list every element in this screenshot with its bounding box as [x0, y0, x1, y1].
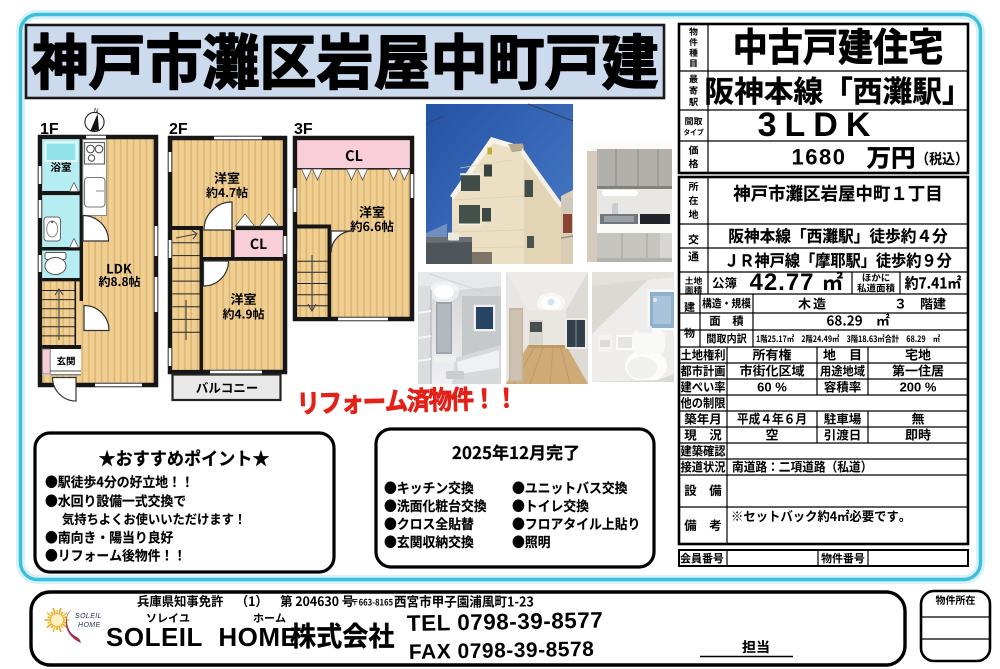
svg-text:3LDK: 3LDK [758, 106, 879, 144]
svg-text:TEL 0798-39-8577: TEL 0798-39-8577 [407, 608, 604, 636]
svg-text:1680: 1680 [792, 145, 847, 170]
svg-text:42.77: 42.77 [749, 269, 814, 296]
svg-text:200 %: 200 % [900, 380, 937, 395]
svg-text:FAX 0798-39-8578: FAX 0798-39-8578 [409, 638, 595, 664]
svg-text:3F: 3F [294, 121, 313, 138]
svg-text:N: N [94, 108, 99, 115]
svg-text:SOLEIL HOME: SOLEIL HOME [106, 622, 298, 652]
svg-text:HOME: HOME [78, 622, 101, 629]
svg-text:2F: 2F [169, 121, 188, 138]
svg-text:60 %: 60 % [757, 380, 787, 395]
svg-text:SOLEIL: SOLEIL [75, 613, 102, 620]
